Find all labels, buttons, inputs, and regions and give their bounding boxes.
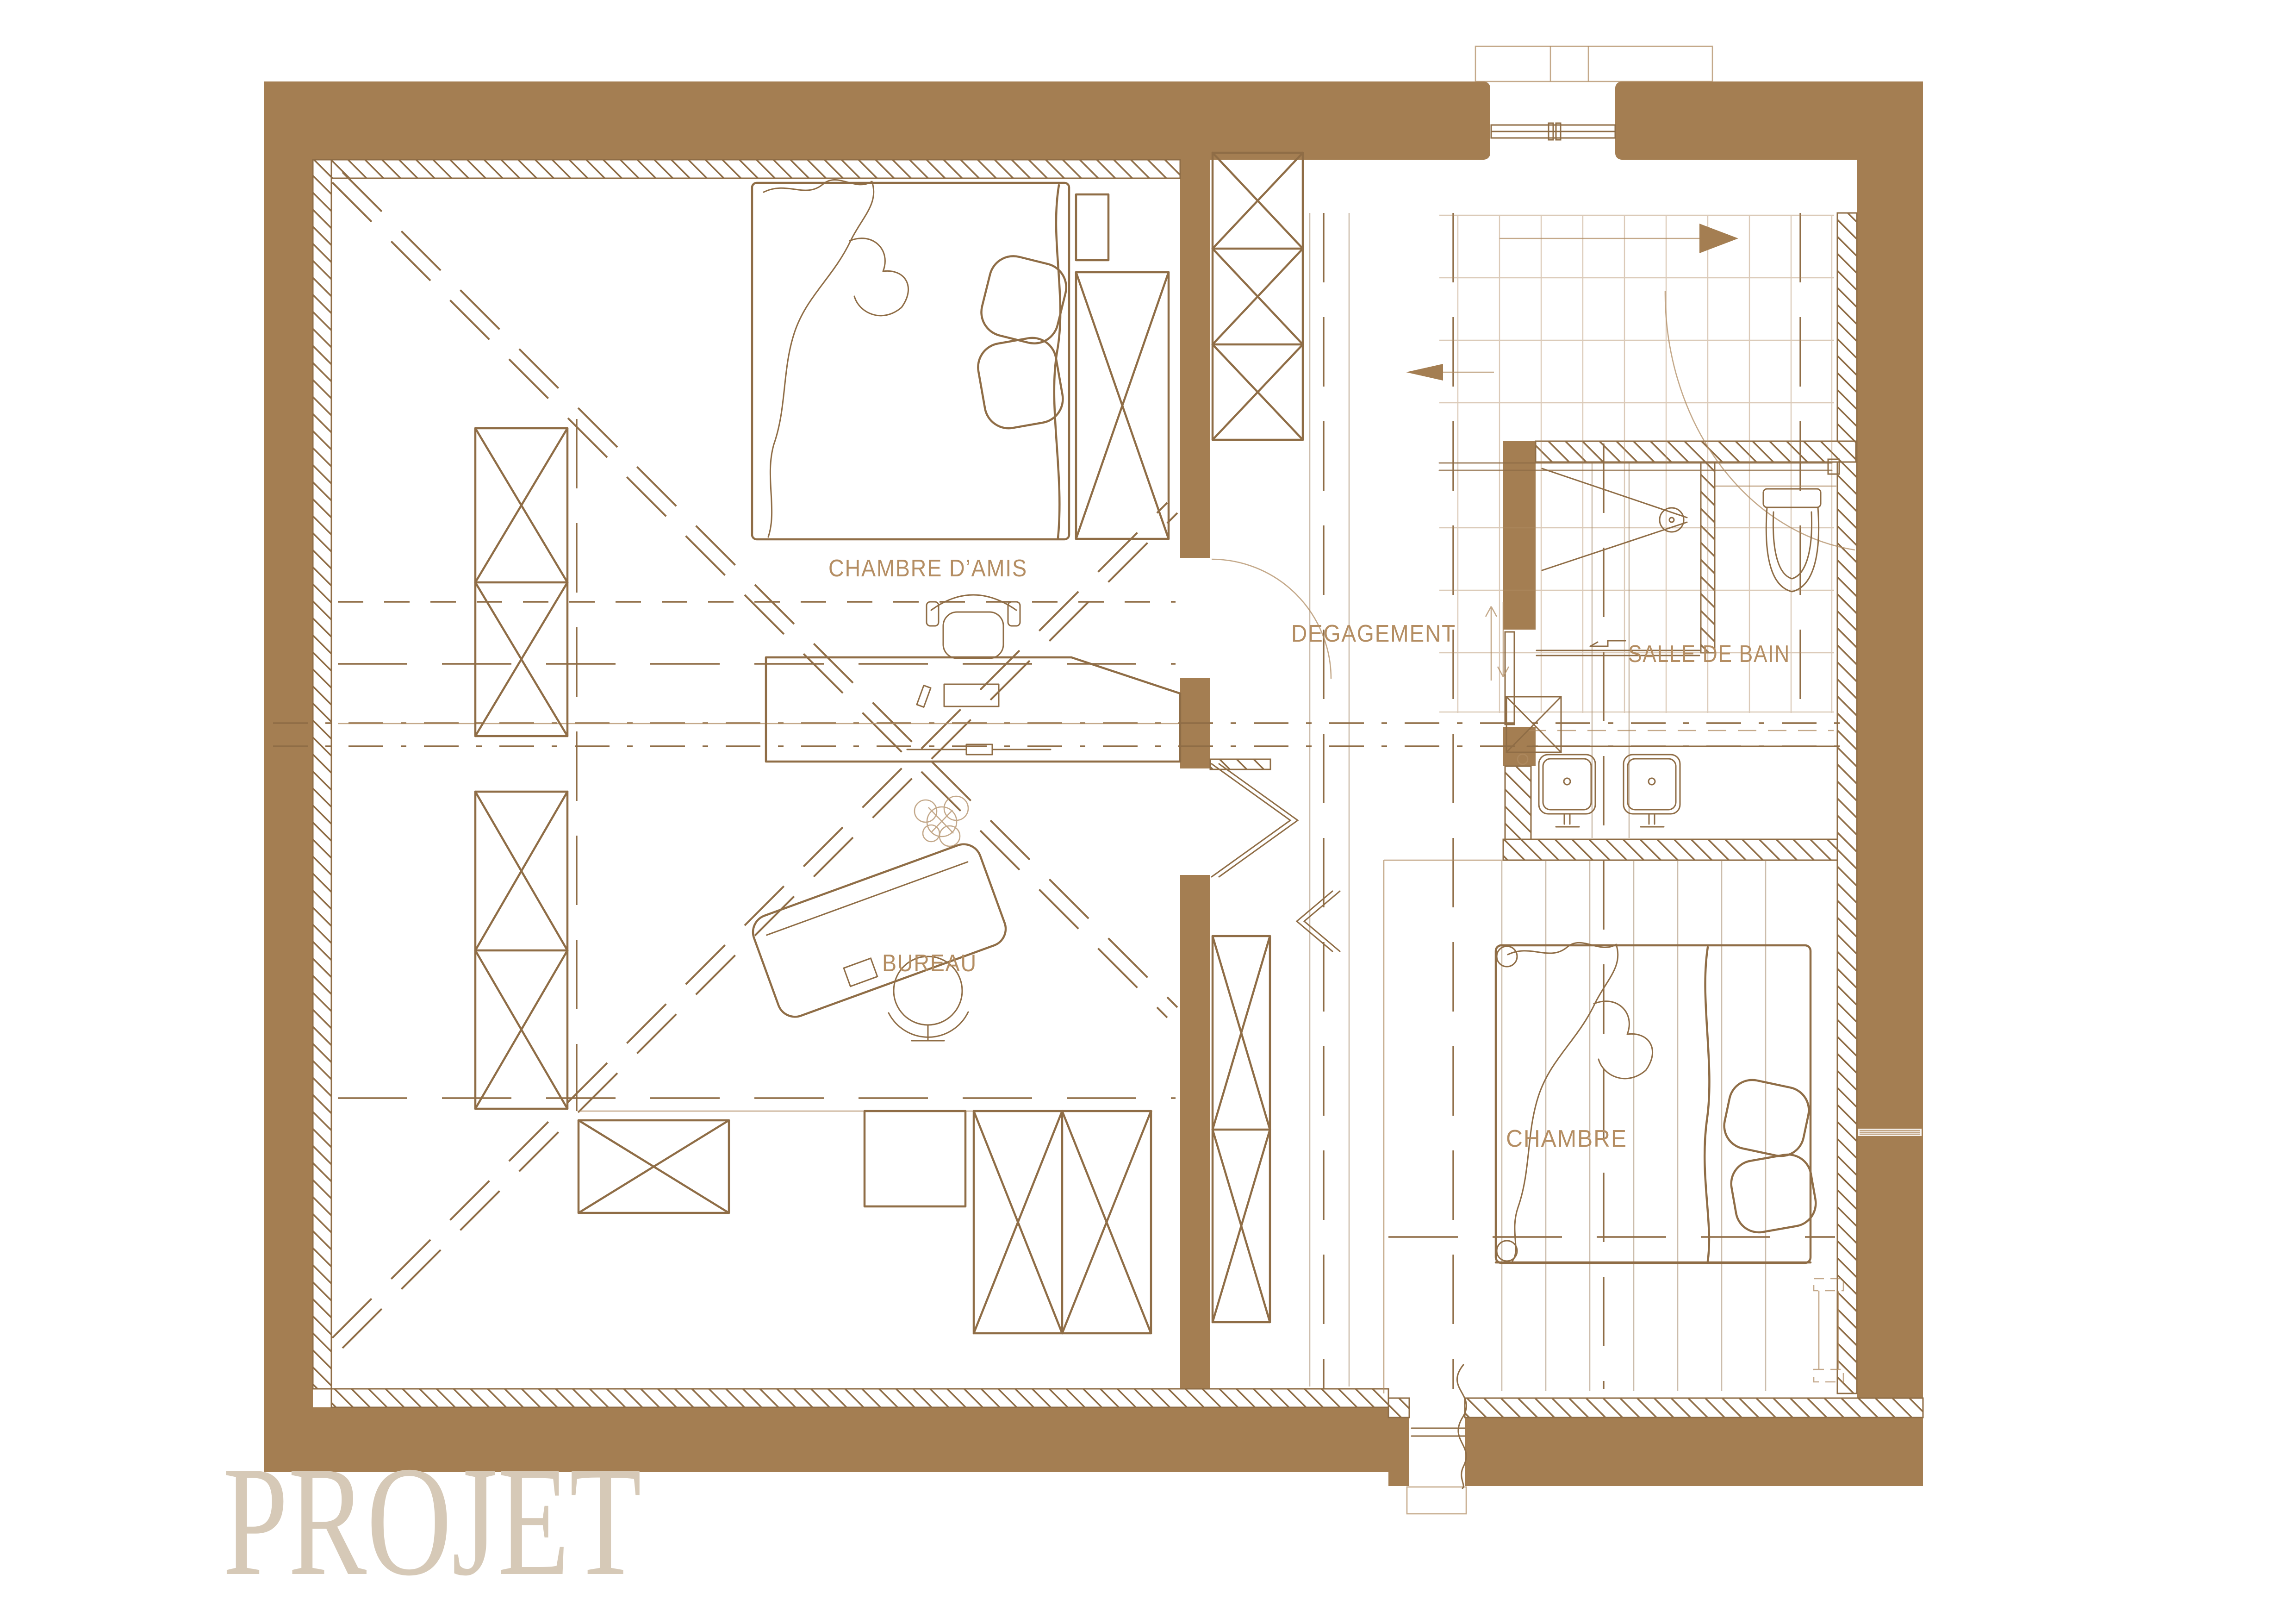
room-label-salle-de-bain: SALLE DE BAIN xyxy=(1628,641,1790,668)
splayed-passage-bureau xyxy=(1219,764,1298,877)
splayed-passage-chambre xyxy=(1297,891,1332,951)
laptop xyxy=(844,958,877,987)
floor-plan-drawing: CHAMBRE D’AMIS DEGAGEMENT SALLE DE BAIN … xyxy=(0,0,2296,1624)
right-wall-liner xyxy=(1837,213,1857,1393)
washbasin-right xyxy=(1624,755,1680,827)
bedroom-window xyxy=(1407,1365,1466,1514)
plant xyxy=(915,796,968,846)
door-swing-arc xyxy=(1665,291,1855,550)
stair-direction-arrow-right xyxy=(1699,224,1738,253)
floor-plan-sheet: CHAMBRE D’AMIS DEGAGEMENT SALLE DE BAIN … xyxy=(0,0,2296,1624)
guest-bedroom-furniture xyxy=(475,180,1180,1109)
headboard-line xyxy=(1705,947,1709,1261)
top-wall-liner xyxy=(331,160,1180,178)
toilet xyxy=(1763,489,1821,592)
cabinet-plain xyxy=(865,1111,965,1206)
stair-stoop-outline xyxy=(1475,46,1712,81)
bottom-wall-right xyxy=(1465,1418,1923,1486)
desk-chair xyxy=(927,595,1020,658)
room-label-bureau: BUREAU xyxy=(882,950,977,977)
shower-head-dot xyxy=(1669,518,1674,522)
stair-stoop-divisions xyxy=(1550,46,1588,81)
room-label-chambre: CHAMBRE xyxy=(1506,1125,1627,1152)
stair-hall-closet xyxy=(1213,153,1303,440)
guest-bed xyxy=(752,180,1071,539)
splayed-passage-bureau xyxy=(1212,764,1290,877)
duvet-folds xyxy=(764,180,874,537)
roof-hip-line xyxy=(332,182,1167,1018)
cabinet-x xyxy=(579,1120,729,1213)
outer-walls xyxy=(264,81,1923,1486)
central-wall-upper xyxy=(1180,160,1210,558)
left-wardrobe-upper xyxy=(475,428,567,736)
doorways xyxy=(1212,559,1514,951)
double-wardrobe xyxy=(974,1111,1151,1333)
duvet-folds xyxy=(1508,943,1618,1261)
shower-spray-lines xyxy=(1542,468,1687,570)
pillow xyxy=(974,334,1067,432)
central-wall-lower xyxy=(1180,875,1210,1407)
bathroom-bottom-wall xyxy=(1503,839,1837,860)
bedroom-bed xyxy=(1496,943,1819,1263)
bedroom-boundary xyxy=(1384,860,1503,1393)
window-sill xyxy=(1407,1487,1466,1514)
bottom-left-liner xyxy=(331,1389,1388,1407)
room-label-chambre-damis: CHAMBRE D’AMIS xyxy=(828,555,1027,582)
partition-walls xyxy=(1180,160,1536,1407)
pillow xyxy=(1728,1151,1819,1236)
duvet-folds xyxy=(1594,1001,1653,1079)
bathroom-left-wall-upper xyxy=(1503,441,1536,630)
bottom-right-liner-b xyxy=(1465,1398,1923,1418)
stair-direction-arrow-left xyxy=(1406,364,1443,381)
roof-hip-line xyxy=(342,513,1177,1348)
desk-item xyxy=(944,684,999,706)
pillow xyxy=(1720,1076,1813,1161)
bathroom-top-wall xyxy=(1536,441,1856,462)
stair-landing-edge xyxy=(1439,463,1832,470)
flow-arrow-up xyxy=(1486,606,1497,681)
left-wardrobe-lower xyxy=(475,792,567,1109)
nightstand xyxy=(1076,194,1108,260)
room-label-degagement: DEGAGEMENT xyxy=(1291,620,1456,647)
axis-lines xyxy=(273,172,1856,1391)
office-desk xyxy=(748,839,1010,1022)
bathroom-left-liner xyxy=(1505,766,1531,839)
right-wall xyxy=(1857,81,1923,1486)
guest-wardrobe xyxy=(1076,272,1169,539)
bottom-wall-window-pier xyxy=(1388,1418,1409,1486)
pillow xyxy=(976,251,1071,348)
office-furniture xyxy=(579,839,1270,1333)
door-swing-arc xyxy=(1212,559,1331,679)
top-wall-left xyxy=(264,81,1490,160)
shower-step-arrow xyxy=(1590,641,1625,646)
washbasin-left xyxy=(1539,755,1595,827)
roof-hip-line xyxy=(342,172,1177,1007)
roof-hip-line xyxy=(332,503,1167,1338)
corridor-closet-column xyxy=(1213,936,1270,1322)
sheet-title: PROJET xyxy=(223,1434,641,1608)
window-glass-lines xyxy=(1412,1428,1465,1436)
hatched-wall-linings xyxy=(313,160,1923,1418)
duvet-folds xyxy=(850,238,908,316)
right-wall-vent xyxy=(1858,1129,1922,1136)
stair-treads xyxy=(1439,215,1834,713)
bottom-right-liner-a xyxy=(1388,1398,1409,1418)
left-wall-liner xyxy=(313,160,331,1389)
desk-pen xyxy=(917,686,931,707)
